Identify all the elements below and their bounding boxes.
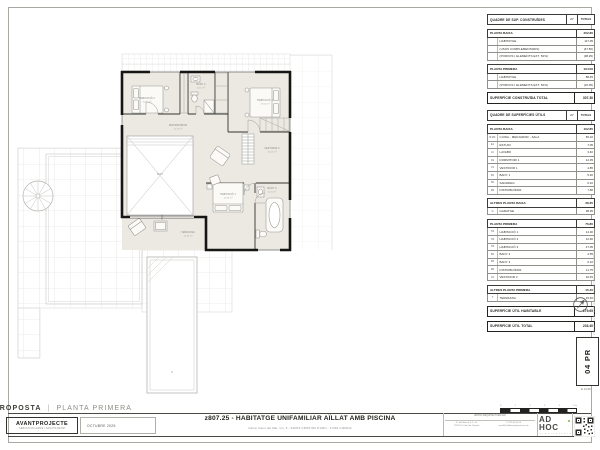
section-label: ALTRES PLANTA PRIMERA: [488, 286, 576, 294]
scalebar-tick: 4: [559, 405, 560, 408]
contact-address: Pl. del Mercat 9, 1r 2a 17220 St. Feliu …: [445, 422, 488, 428]
row-name: HABITACIÓ 1: [498, 228, 576, 235]
authors: SEBASTIAN LEMKE / SASCHA REHM: [19, 428, 65, 430]
label-bany3: BANY 3: [267, 187, 277, 190]
scalebar-bar: [500, 408, 577, 413]
table-section: PLANTA PRIMERA76.80H1HABITACIÓ 114.30H2H…: [487, 219, 595, 282]
row-code: [488, 46, 498, 53]
project-type-box: AVANTPROJECTE SEBASTIAN LEMKE / SASCHA R…: [6, 417, 78, 434]
svg-text:11.75 m²: 11.75 m²: [174, 128, 183, 131]
table-row: H3HABITACIÓ 317.05: [487, 244, 595, 252]
table-row: H1HABITACIÓ 114.30: [487, 228, 595, 236]
studio-logo: AD HOC a r q u i t e c t u r a: [539, 415, 572, 435]
table-row: DSDISTRIBUÏDOR11.75: [487, 266, 595, 274]
row-name: DISTRIBUÏDOR: [498, 266, 576, 273]
row-code: D1: [488, 157, 498, 164]
table-row: (USOS COMPLEMENTARIS)(47.50): [487, 46, 595, 54]
row-code: SF: [488, 180, 498, 187]
svg-text:10.45 m²: 10.45 m²: [267, 151, 276, 154]
project-address: Carrer Camí del Mar, s/n, 5 - SANTA CRIS…: [170, 426, 430, 430]
row-value: 6.10: [576, 259, 594, 266]
totalbar-value: 307.30: [574, 93, 594, 103]
row-name: BANY 1: [498, 172, 576, 179]
titleblock-divider: [537, 413, 538, 436]
section-total: 102.85: [576, 125, 594, 133]
section-label: ALTRES PLANTA BAIXA: [488, 199, 576, 207]
label-buit: BUIT: [157, 173, 163, 176]
qr-code: [574, 416, 595, 437]
table-row: GGARATGE38.35: [487, 208, 595, 216]
section-total: 15.40: [576, 286, 594, 294]
totalbar-label: SUPERFÍCIE ÚTIL TOTAL: [488, 322, 574, 332]
floor-plan: HABITACIÓ 2 12.60 m² HABITACIÓ 3 17.05 m…: [8, 40, 338, 400]
section-total: 38.35: [576, 199, 594, 207]
spiral-stair: [23, 181, 53, 211]
row-name: HABITACIÓ 3: [498, 244, 576, 251]
table-section-header: ALTRES PLANTA BAIXA38.35: [487, 198, 595, 208]
proposta-label: PROPOSTA: [0, 405, 42, 412]
row-name: BANY 3: [498, 259, 576, 266]
row-code: LV: [488, 149, 498, 156]
stairs: [242, 134, 254, 164]
table-row: H2HABITACIÓ 212.60: [487, 236, 595, 244]
table-row: V1VESTIDOR 14.85: [487, 164, 595, 172]
project-title: z807.25 - HABITATGE UNIFAMILIAR AÏLLAT A…: [170, 415, 430, 422]
project-type: AVANTPROJECTE: [16, 421, 68, 427]
section-total: 202.80: [576, 30, 594, 38]
row-code: H3: [488, 244, 498, 251]
table-row: B.MCCUINA - MENJADOR - SALA56.10: [487, 134, 595, 142]
fase-label: PLANTA PRIMERA: [57, 405, 133, 412]
area-tables: QUADRE DE SUP. CONSTRUÏDESm²TOTALSPLANTA…: [487, 14, 595, 336]
table-row: V2VESTIDOR 210.45: [487, 274, 595, 282]
label-vestidor2: VESTIDOR 2: [264, 147, 280, 150]
scalebar-tick: 3: [544, 405, 545, 408]
margin-note: z807.25 · AVANTPROJECTE · PROPOSTA | PLA…: [594, 150, 596, 335]
table-section-header: ALTRES PLANTA PRIMERA15.40: [487, 285, 595, 295]
svg-text:12.60 m²: 12.60 m²: [142, 101, 151, 104]
row-value: 7.80: [576, 187, 594, 194]
logo-text: AD HOC: [539, 416, 572, 432]
svg-text:15.40 m²: 15.40 m²: [183, 235, 192, 238]
row-name: HABITACIÓ 2: [498, 236, 576, 243]
row-code: B3: [488, 259, 498, 266]
sheet-number-box: 04 PR: [576, 337, 599, 386]
row-value: 88.45: [576, 74, 594, 81]
scale-label: E 1/100: [568, 387, 600, 391]
row-value: 7.05: [576, 142, 594, 149]
row-value: 5.20: [576, 172, 594, 179]
row-name: SAFAREIG: [498, 180, 576, 187]
row-code: E1: [488, 142, 498, 149]
row-code: [488, 74, 498, 81]
north-arrow-icon: [572, 296, 589, 313]
sheet-phase-title: PROPOSTA | PLANTA PRIMERA: [0, 403, 132, 413]
scalebar-tick: 0: [500, 405, 501, 408]
row-name: (PORXOS I ELEMENTS EXT. 50%): [498, 53, 576, 60]
svg-text:4.55 m²: 4.55 m²: [197, 86, 205, 89]
row-value: 4.85: [576, 164, 594, 171]
table-row: E1ESTUDI7.05: [487, 142, 595, 150]
table-title-label: QUADRE DE SUPERFÍCIES ÚTILS: [488, 111, 566, 120]
contact-phone: T. 972 32 00 00 estudi@adhocarquitectura…: [492, 422, 535, 428]
table-row: B3BANY 36.10: [487, 259, 595, 267]
titleblock-divider: [443, 413, 444, 436]
row-value: 10.45: [576, 274, 594, 281]
row-code: V2: [488, 274, 498, 281]
separator: |: [48, 405, 51, 412]
label-distribuidor: DISTRIBUÏDOR: [169, 124, 188, 127]
row-name: CUINA - MENJADOR - SALA: [498, 134, 576, 141]
logo-accent-dot: [568, 420, 570, 422]
row-name: (PORXOS I ELEMENTS EXT. 50%): [498, 81, 576, 88]
table-title: QUADRE DE SUP. CONSTRUÏDESm²TOTALS: [487, 14, 595, 25]
row-code: B.MC: [488, 134, 498, 141]
svg-text:6.10 m²: 6.10 m²: [268, 191, 276, 194]
scalebar-tick: 5 m: [573, 405, 577, 408]
row-value: 14.30: [576, 228, 594, 235]
table-row: (PORXOS I ELEMENTS EXT. 50%)(38.25): [487, 53, 595, 61]
table-row: (PORXOS I ELEMENTS EXT. 50%)(16.05): [487, 81, 595, 89]
row-name: DORMITORI 1: [498, 157, 576, 164]
titleblock-bottom-rule: [8, 436, 591, 437]
row-value: 56.10: [576, 134, 594, 141]
table-section: PLANTA PRIMERA104.50HABITATGE88.45(PORXO…: [487, 64, 595, 89]
row-code: DS: [488, 187, 498, 194]
label-terrassa: TERRASSA: [181, 231, 195, 234]
row-value: 11.75: [576, 266, 594, 273]
row-code: H2: [488, 236, 498, 243]
contact-divider: [445, 420, 535, 421]
row-code: G: [488, 208, 498, 215]
row-name: (USOS COMPLEMENTARIS): [498, 46, 576, 53]
table-section: PLANTA BAIXA102.85B.MCCUINA - MENJADOR -…: [487, 124, 595, 194]
row-code: V1: [488, 164, 498, 171]
table-row: HABITATGE117.05: [487, 38, 595, 46]
table-totalbar: SUPERFÍCIE CONSTRUÏDA TOTAL307.30: [487, 92, 595, 104]
table-section-header: PLANTA BAIXA102.85: [487, 124, 595, 134]
row-value: 38.35: [576, 208, 594, 215]
sheet-date: OCTUBRE 2025: [87, 424, 116, 428]
row-value: 17.05: [576, 244, 594, 251]
label-habitacio3: HABITACIÓ 3: [257, 99, 273, 102]
row-value: (38.25): [576, 53, 594, 60]
table-row: D1DORMITORI 112.35: [487, 157, 595, 165]
drawing-sheet: HABITACIÓ 2 12.60 m² HABITACIÓ 3 17.05 m…: [0, 0, 600, 450]
table-row: LVLAVABO3.40: [487, 149, 595, 157]
svg-text:17.05 m²: 17.05 m²: [260, 103, 269, 106]
row-name: HABITATGE: [498, 38, 576, 45]
row-value: 3.40: [576, 149, 594, 156]
table-row: HABITATGE88.45: [487, 74, 595, 82]
totalbar-label: SUPERFÍCIE ÚTIL HABITABLE: [488, 307, 574, 317]
label-bany2: BANY 2: [196, 83, 206, 86]
row-name: TERRASSA: [498, 294, 576, 301]
row-value: (16.05): [576, 81, 594, 88]
label-habitacio1: HABITACIÓ 1: [220, 193, 236, 196]
svg-text:14.30 m²: 14.30 m²: [223, 197, 232, 200]
section-label: PLANTA PRIMERA: [488, 220, 576, 228]
graphic-scalebar: 012345 m: [500, 405, 577, 413]
table-section: ALTRES PLANTA BAIXA38.35GGARATGE38.35: [487, 198, 595, 215]
table-totalbar: SUPERFÍCIE ÚTIL TOTAL233.40: [487, 321, 595, 333]
table-row: B1BANY 15.20: [487, 172, 595, 180]
scalebar-tick: 1: [515, 405, 516, 408]
table-section: PLANTA BAIXA202.80HABITATGE117.05(USOS C…: [487, 29, 595, 61]
table-col-totals: TOTALS: [577, 111, 594, 120]
table-col-totals: TOTALS: [577, 15, 594, 24]
table-row: DSDISTRIBUÏDOR7.80: [487, 187, 595, 195]
row-code: [488, 81, 498, 88]
row-value: 117.05: [576, 38, 594, 45]
row-name: HABITATGE: [498, 74, 576, 81]
row-value: (47.50): [576, 46, 594, 53]
table-row: B2BANY 24.55: [487, 251, 595, 259]
row-name: DISTRIBUÏDOR: [498, 187, 576, 194]
table-section-header: PLANTA PRIMERA104.50: [487, 64, 595, 74]
totalbar-label: SUPERFÍCIE CONSTRUÏDA TOTAL: [488, 93, 574, 103]
row-code: B2: [488, 251, 498, 258]
table-col-m2: m²: [566, 111, 577, 120]
row-value: 6.10: [576, 180, 594, 187]
titleblock-divider: [572, 413, 573, 436]
row-name: VESTIDOR 1: [498, 164, 576, 171]
label-habitacio2: HABITACIÓ 2: [139, 97, 155, 100]
studio-name: ADHOC ARQUITECTURA SLP: [445, 415, 535, 417]
row-value: 12.35: [576, 157, 594, 164]
row-name: BANY 2: [498, 251, 576, 258]
pool: [147, 257, 197, 393]
table-section-header: PLANTA PRIMERA76.80: [487, 219, 595, 229]
row-code: T: [488, 294, 498, 301]
row-value: 12.60: [576, 236, 594, 243]
section-label: PLANTA PRIMERA: [488, 65, 576, 73]
table-section-header: PLANTA BAIXA202.80: [487, 29, 595, 39]
row-value: 4.55: [576, 251, 594, 258]
section-label: PLANTA BAIXA: [488, 30, 576, 38]
table-title: QUADRE DE SUPERFÍCIES ÚTILSm²TOTALS: [487, 110, 595, 121]
table-row: SFSAFAREIG6.10: [487, 180, 595, 188]
sheet-number: 04 PR: [583, 349, 592, 374]
row-code: B1: [488, 172, 498, 179]
table-col-m2: m²: [566, 15, 577, 24]
date-box: OCTUBRE 2025: [80, 417, 156, 434]
logo-tagline: a r q u i t e c t u r a: [540, 433, 572, 435]
row-code: [488, 53, 498, 60]
row-name: GARATGE: [498, 208, 576, 215]
row-name: ESTUDI: [498, 142, 576, 149]
row-name: VESTIDOR 2: [498, 274, 576, 281]
section-label: PLANTA BAIXA: [488, 125, 576, 133]
section-total: 104.50: [576, 65, 594, 73]
scalebar-tick: 2: [529, 405, 530, 408]
row-code: H1: [488, 228, 498, 235]
row-code: DS: [488, 266, 498, 273]
totalbar-value: 233.40: [574, 322, 594, 332]
row-name: LAVABO: [498, 149, 576, 156]
table-title-label: QUADRE DE SUP. CONSTRUÏDES: [488, 15, 566, 24]
section-total: 76.80: [576, 220, 594, 228]
row-code: [488, 38, 498, 45]
